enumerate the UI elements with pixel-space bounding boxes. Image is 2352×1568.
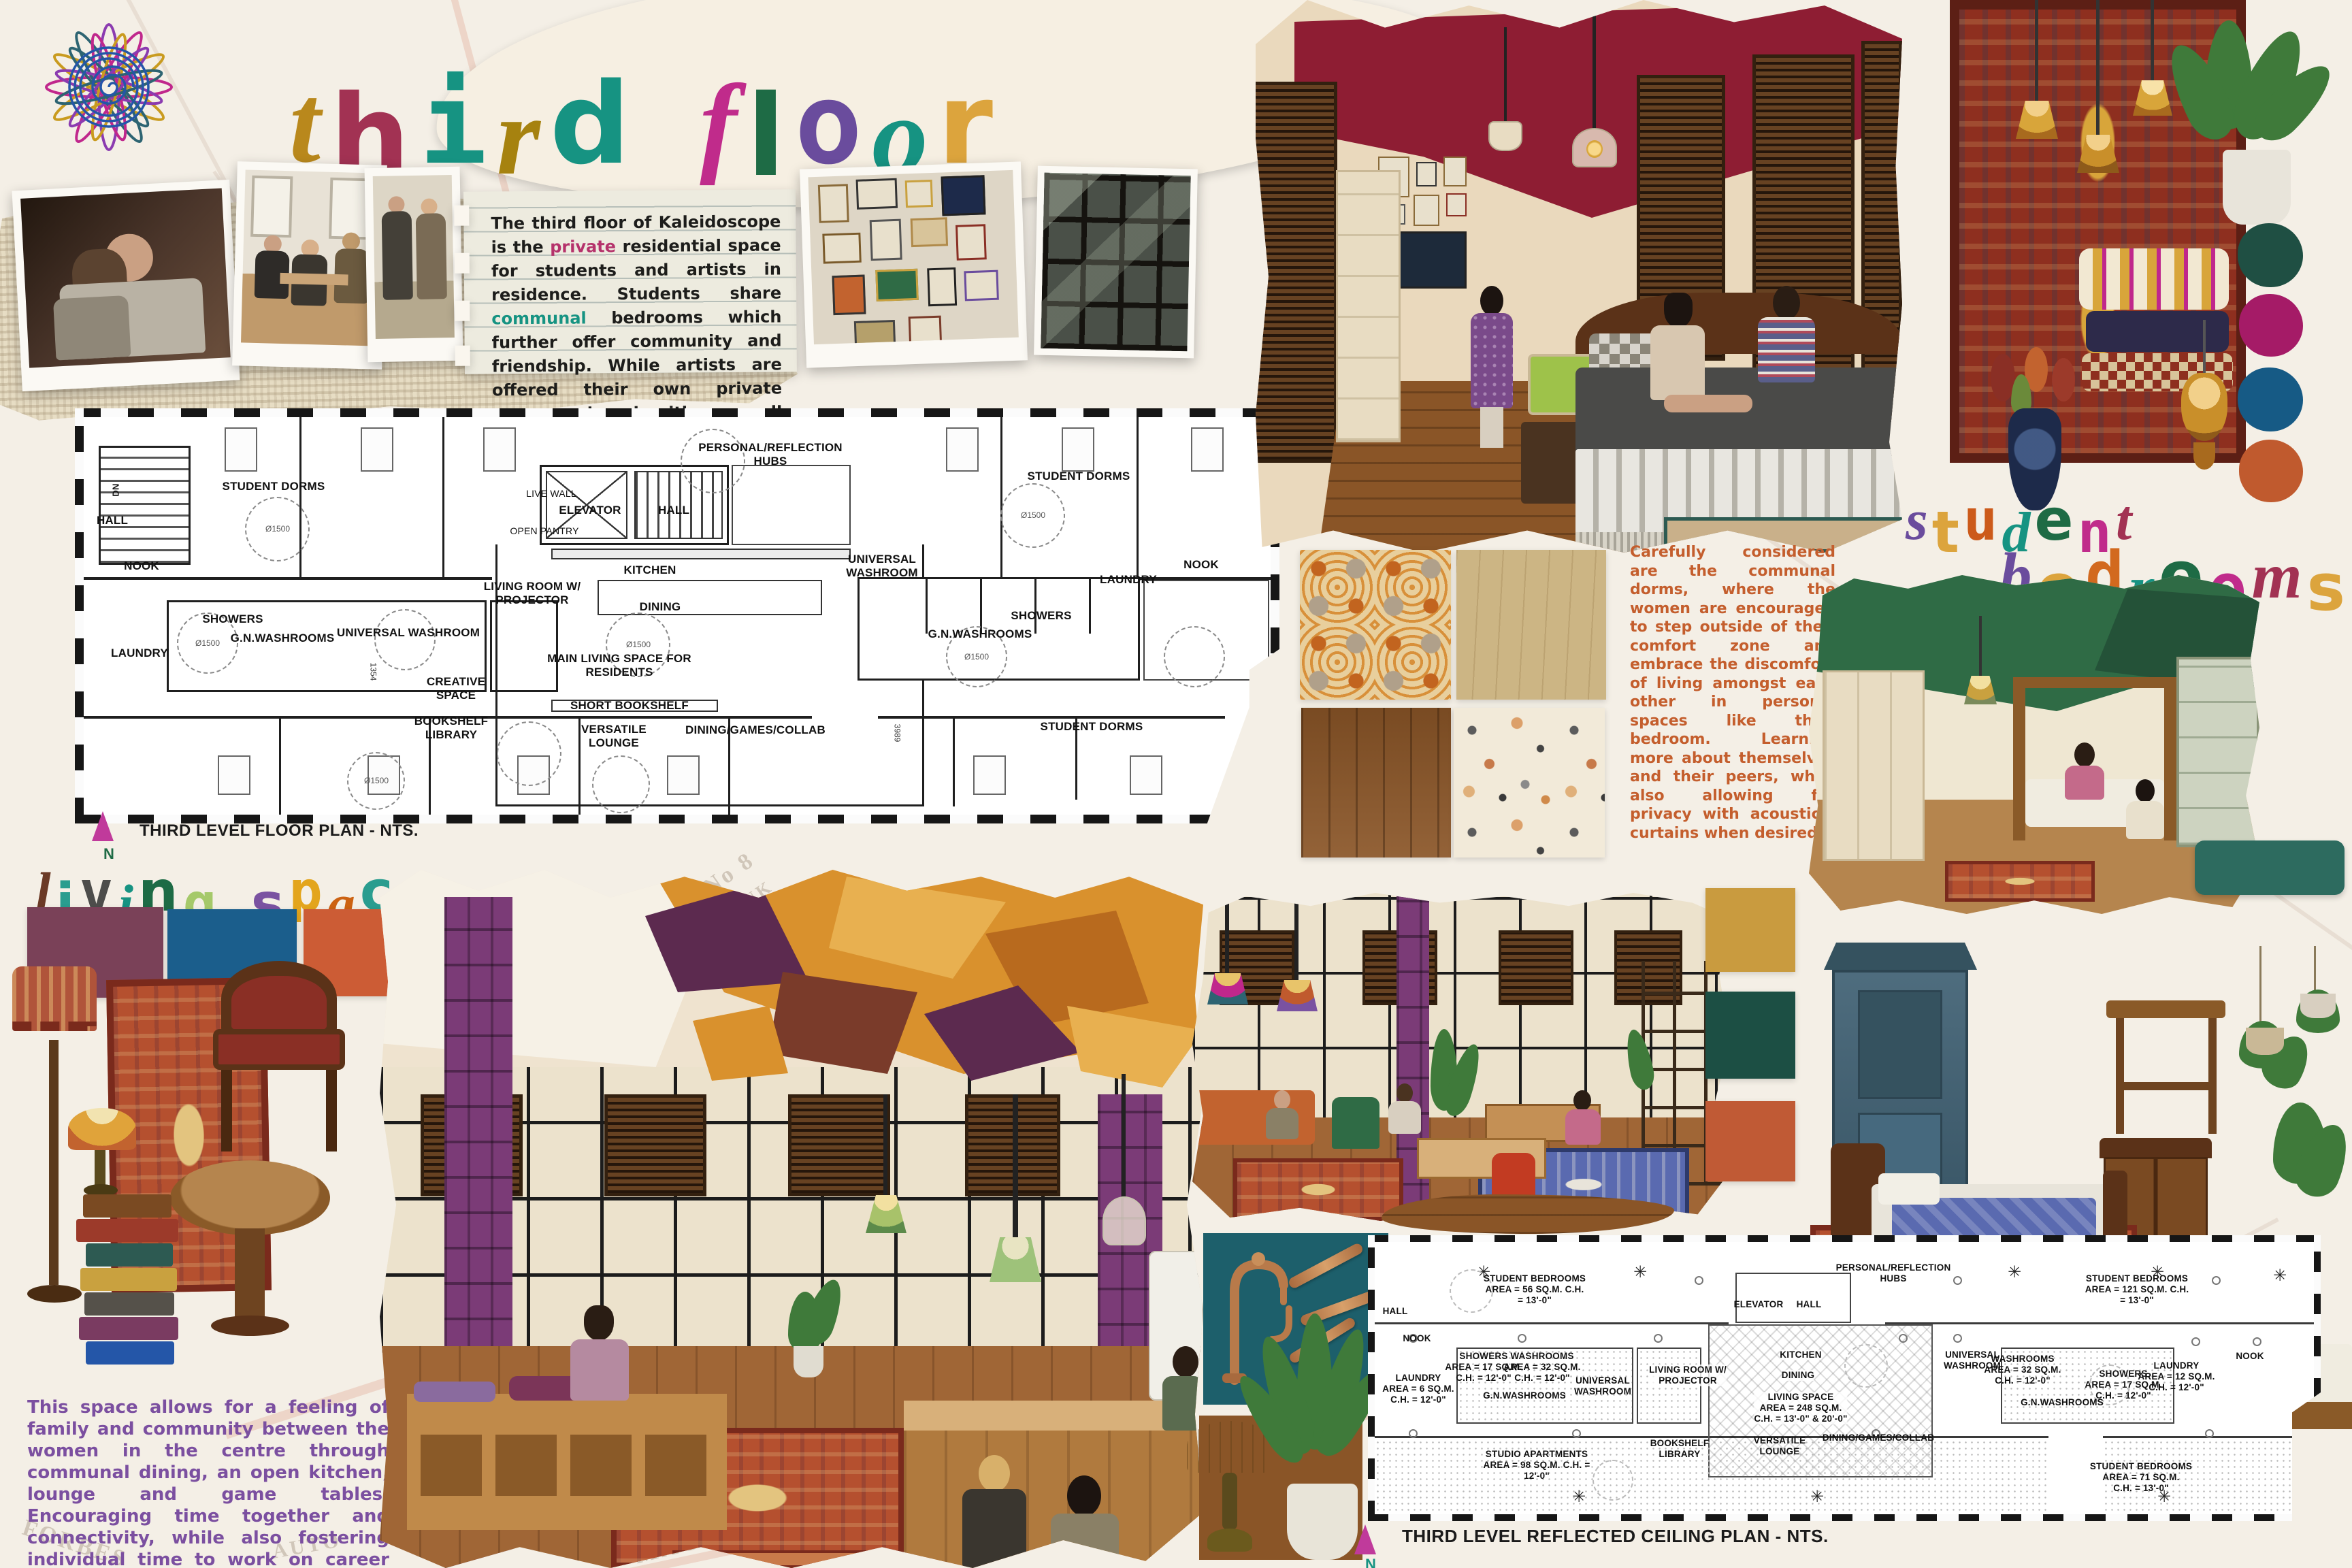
north-letter: N [1365, 1556, 1376, 1568]
frame [870, 219, 902, 261]
pendant-lamp-glass [1122, 1074, 1126, 1196]
dining-island [598, 580, 822, 615]
plan-label: DN [111, 483, 121, 496]
window-blinds [1256, 82, 1337, 463]
person [1388, 1101, 1421, 1134]
hanging-lamp [2151, 0, 2154, 82]
hanging-lantern [2168, 320, 2242, 490]
palette-circle [2239, 294, 2303, 357]
plan-label: NOOK [124, 559, 159, 573]
plan-label: MAIN LIVING SPACE FOR RESIDENTS [547, 652, 691, 679]
plan-label: G.N.WASHROOMS [928, 627, 1032, 641]
plan-label: STUDENT DORMS [1028, 470, 1130, 483]
plan-label: SHOWERS [1011, 609, 1071, 623]
frame [875, 269, 919, 301]
plan-label: DINING [1782, 1370, 1814, 1381]
frame [909, 316, 943, 345]
plan-label: KITCHEN [1780, 1350, 1821, 1360]
side-table [2106, 1000, 2225, 1150]
person [1274, 1090, 1290, 1109]
faceted-ceiling [604, 870, 1203, 1094]
reflected-ceiling-plan: ✳✳ ✳✳ ✳✳ ✳✳ STUDENT BEDROOMS AREA = 56 S… [1368, 1235, 2321, 1521]
wooden-armchair [201, 961, 357, 1169]
person [1051, 1514, 1119, 1568]
wardrobe [1336, 170, 1401, 442]
frame [955, 224, 987, 261]
armchair-green [1332, 1097, 1379, 1149]
frame [832, 275, 866, 316]
frame [854, 320, 896, 344]
frame [818, 184, 849, 223]
person [962, 1489, 1026, 1568]
plan-label: NOOK [2236, 1351, 2264, 1362]
plan-label: UNIVERSAL WASHROOM [337, 626, 480, 640]
plan-label: STUDENT BEDROOMS AREA = 56 SQ.M. C.H. = … [1484, 1273, 1586, 1306]
palette-swatch [1705, 1101, 1795, 1181]
plan-label: HALL [658, 504, 689, 517]
frame [927, 267, 957, 306]
palette-circle [2238, 223, 2303, 287]
palette-swatch [1705, 992, 1795, 1079]
person [584, 1305, 614, 1341]
pendant-lamp-green [1013, 1094, 1018, 1237]
plan-label: WASHROOMS AREA = 32 SQ.M. C.H. = 12'-0" [1503, 1351, 1580, 1384]
reflection-hubs-block [732, 465, 851, 545]
pendant-light [1504, 27, 1507, 122]
window-blinds [1499, 930, 1573, 1005]
spirograph-logo [31, 0, 187, 177]
plan-label: LIVING ROOM W/ PROJECTOR [484, 580, 581, 607]
window-blinds [788, 1094, 890, 1196]
frame [941, 175, 986, 216]
photo-glass-partition [1034, 166, 1198, 359]
person [979, 1455, 1010, 1492]
walking-person [1480, 286, 1503, 316]
palette-swatch [1705, 888, 1795, 972]
pendant-lamp-patterned [1225, 893, 1229, 975]
plan-label: LIVE WALL [526, 488, 576, 499]
wardrobe-cream [1823, 670, 1925, 861]
plan-label: LAUNDRY [111, 647, 168, 660]
plan-label: CREATIVE SPACE [427, 675, 485, 702]
plan-label: ELEVATOR [1734, 1299, 1784, 1310]
plan-label: NOOK [1403, 1333, 1431, 1344]
person-on-bed [1773, 286, 1800, 320]
render-communal-bedroom [1809, 575, 2259, 914]
hanging-lamp [2096, 0, 2100, 136]
plan-label: LAUNDRY [1100, 573, 1157, 587]
bedside-table [1521, 422, 1582, 504]
plan-label: BOOKSHELF LIBRARY [414, 715, 489, 742]
plan-label: DINING/GAMES/COLLAB [685, 723, 826, 737]
person [570, 1339, 629, 1401]
plan-label: OPEN PANTRY [510, 525, 578, 536]
stair [99, 446, 191, 565]
plan-label: VERSATILE LOUNGE [1754, 1435, 1806, 1457]
plan-label: LIVING SPACE AREA = 248 SQ.M. C.H. = 13'… [1754, 1392, 1847, 1424]
plan-label: G.N.WASHROOMS [1483, 1390, 1566, 1401]
plan-label: STUDENT DORMS [223, 480, 325, 493]
hanging-lamp [2035, 0, 2038, 102]
person-on-bed [1650, 325, 1705, 400]
plan-label: LIVING ROOM W/ PROJECTOR [1649, 1365, 1727, 1386]
material-terrazzo [1454, 708, 1605, 857]
palette-circle [2238, 367, 2303, 431]
person [1573, 1090, 1591, 1111]
frame [905, 180, 933, 208]
render-main-living-space [380, 870, 1203, 1568]
plan-label: STUDENT BEDROOMS AREA = 121 SQ.M. C.H. =… [2085, 1273, 2189, 1306]
person-on-bed [1664, 293, 1693, 328]
plan-label: LAUNDRY AREA = 6 SQ.M. C.H. = 12'-0" [1382, 1373, 1454, 1405]
third-level-floor-plan: Ø1500 Ø1500 Ø1500 Ø1500 Ø1500 Ø1500 STUD… [75, 408, 1279, 823]
person [2126, 801, 2164, 839]
person [1565, 1109, 1601, 1145]
plan-label: SHORT BOOKSHELF [570, 699, 689, 713]
intro-card: The third floor of Kaleidoscope is the p… [463, 189, 797, 374]
red-rug [1233, 1158, 1403, 1221]
tiffany-lamp-small [65, 1108, 140, 1203]
person [2136, 779, 2155, 802]
potted-plant [2178, 20, 2341, 252]
plan-label: PERSONAL/REFLECTION HUBS [1836, 1262, 1951, 1284]
person [1266, 1108, 1298, 1139]
material-tile [1300, 550, 1451, 700]
book-stack [76, 1194, 185, 1378]
pendant-lamp-patterned [1294, 893, 1298, 981]
plan-label: STUDENT DORMS [1041, 720, 1143, 734]
plan-label: NOOK [1183, 558, 1219, 572]
pendant-stained-glass [1979, 616, 1982, 677]
render-communal-lounge [1192, 893, 1730, 1221]
plan-label: DINING [640, 600, 681, 614]
photo-gallery-wall [800, 161, 1028, 367]
north-arrow-icon [92, 811, 114, 841]
low-shelf [407, 1394, 727, 1530]
frame [964, 270, 999, 301]
frame [911, 217, 948, 247]
plan-label: DINING/GAMES/COLLAB [1823, 1433, 1934, 1443]
plan-label: PERSONAL/REFLECTION HUBS [698, 441, 843, 468]
page-title: third floor [289, 37, 1002, 180]
frame [822, 233, 862, 264]
person [1173, 1346, 1198, 1377]
plan-label: SHOWERS [202, 612, 263, 626]
plan-label: BOOKSHELF LIBRARY [1650, 1438, 1710, 1460]
photo-two-women [365, 167, 463, 362]
plan-label: G.N.WASHROOMS [231, 632, 335, 645]
person [1067, 1475, 1101, 1516]
hanging-plants [2232, 946, 2352, 1239]
plan-label: STUDIO APARTMENTS AREA = 98 SQ.M. C.H. =… [1484, 1449, 1590, 1482]
plan-label: UNIVERSAL WASHROOM [846, 553, 917, 580]
living-space-paragraph: This space allows for a feeling of famil… [27, 1396, 389, 1567]
plan-label: LAUNDRY AREA = 12 SQ.M. C.H. = 12'-0" [2138, 1360, 2215, 1393]
palette-circle [2239, 440, 2303, 502]
plan-label: KITCHEN [624, 563, 676, 577]
plan-label: HALL [1383, 1306, 1408, 1317]
walking-person [1471, 313, 1513, 408]
teal-bench [2195, 840, 2345, 895]
presentation-board: No 8 OIL TANK INDEX MACHINE AUTO FORBES [0, 0, 2352, 1568]
north-arrow-icon [1354, 1524, 1376, 1554]
bed [1575, 293, 1902, 553]
photo-hug [12, 180, 240, 391]
person-on-bed [1758, 317, 1815, 382]
plan2-caption: THIRD LEVEL REFLECTED CEILING PLAN - NTS… [1402, 1526, 1829, 1547]
plan-label: HALL [97, 514, 128, 527]
plan-label: WASHROOMS AREA = 32 SQ.M. C.H. = 12'-0" [1984, 1354, 2061, 1386]
round-side-table [170, 1160, 330, 1351]
glass-door-green [2176, 657, 2259, 847]
render-student-bedroom [1256, 0, 1902, 553]
plan-label: ELEVATOR [559, 504, 621, 517]
wood-scrap [1382, 1194, 1674, 1234]
material-light-oak [1456, 550, 1606, 700]
plan1-caption: THIRD LEVEL FLOOR PLAN - NTS. [140, 821, 419, 840]
photo-dining-group [232, 161, 387, 370]
pendant-light [1592, 0, 1596, 129]
plan-label: STUDENT BEDROOMS AREA = 71 SQ.M. C.H. = … [2090, 1461, 2192, 1494]
plan-label: VERSATILE LOUNGE [581, 723, 647, 750]
pendant-lamp-stained [883, 1094, 887, 1196]
material-dark-wood [1301, 708, 1451, 857]
person [1396, 1083, 1413, 1102]
kitchen-counter [551, 549, 851, 559]
bedrooms-paragraph: Carefully considered are the communal do… [1630, 543, 1835, 883]
window-blinds [604, 1094, 706, 1196]
plan-label: HALL [1797, 1299, 1822, 1310]
small-rug [1945, 861, 2095, 902]
frame [856, 178, 898, 210]
plan-label: UNIVERSAL WASHROOM [1574, 1375, 1631, 1397]
